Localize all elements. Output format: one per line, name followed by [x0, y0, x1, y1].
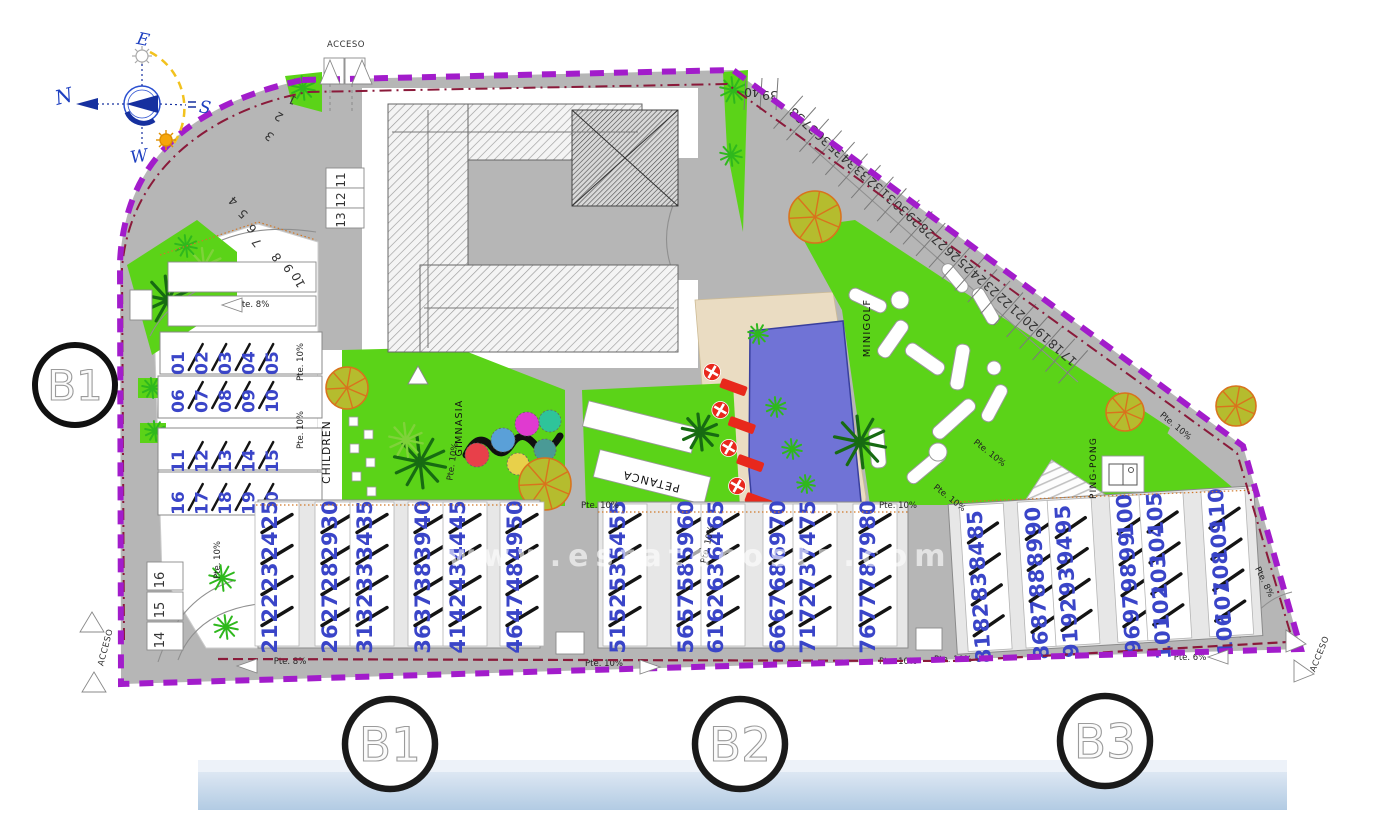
unit-number: 01: [169, 351, 189, 375]
block-marker-b2: B2: [695, 699, 785, 789]
tree-icon: [789, 191, 841, 243]
ping-pong-table: [1102, 456, 1144, 492]
access-bottom-right: ACCESO: [1286, 630, 1332, 682]
unit-number: 02: [193, 351, 213, 375]
unit-number: 41: [446, 624, 470, 653]
unit-number: 06: [169, 389, 189, 413]
unit-number: 34: [353, 531, 377, 560]
unit-number: 30: [318, 500, 342, 529]
unit-number: 18: [216, 491, 236, 515]
unit-number: 97: [1118, 593, 1144, 624]
block-marker-label: B1: [359, 718, 421, 773]
unit-number: 45: [446, 500, 470, 529]
unit-number: 87: [1026, 599, 1052, 630]
tree-icon: [1216, 386, 1256, 426]
stepping-stone: [350, 444, 359, 453]
unit-number: 08: [216, 389, 236, 413]
unit-number: 39: [411, 531, 435, 560]
unit-number: 76: [856, 624, 880, 653]
unit-number: 94: [1052, 535, 1078, 566]
compass-n: N: [51, 82, 76, 110]
unit-number: 28: [318, 562, 342, 591]
unit-number: 38: [411, 562, 435, 591]
unit-number: 61: [704, 624, 728, 653]
row-block-b1: 2122232425262728293031323334353637383940…: [255, 500, 544, 654]
unit-number: 12: [193, 449, 213, 473]
minigolf-label: MINIGOLF: [862, 299, 873, 358]
gate-triangle: [80, 612, 104, 632]
unit-number: 07: [193, 389, 213, 413]
unit-number: 84: [965, 541, 991, 572]
site-plan-svg: 0102030405060708091011121314151617181920…: [0, 0, 1393, 823]
unit-number: 17: [193, 491, 213, 515]
unit-number: 62: [704, 593, 728, 622]
unit-number: 03: [216, 351, 236, 375]
unit-number: 95: [1050, 504, 1076, 535]
ping-pong-label: PING-PONG: [1089, 437, 1099, 499]
unit-number: 75: [796, 500, 820, 529]
unit-number: 09: [240, 389, 260, 413]
north-arrow: [76, 98, 98, 110]
unit-number: 47: [503, 593, 527, 622]
parking-number: 11: [334, 172, 348, 187]
acceso-label: ACCESO: [1308, 635, 1332, 674]
unit-number: 11: [169, 449, 189, 473]
unit-number: 110: [1204, 488, 1231, 533]
access-bottom-left: ACCESO: [80, 612, 116, 692]
unit-number: 93: [1054, 566, 1080, 597]
umbrella-icon: [729, 478, 746, 495]
unit-number: 80: [856, 500, 880, 529]
unit-number: 92: [1056, 597, 1082, 628]
stepping-stone: [352, 472, 361, 481]
unit-number: 50: [503, 500, 527, 529]
stepping-stone: [366, 458, 375, 467]
unit-number: 22: [258, 593, 282, 622]
unit-number: 26: [318, 624, 342, 653]
unit-number: 42: [446, 593, 470, 622]
parking-number: 14: [153, 632, 168, 649]
unit-number: 83: [966, 571, 992, 602]
block-marker-b3: B3: [1060, 696, 1150, 786]
unit-number: 66: [766, 624, 790, 653]
unit-number: 60: [674, 500, 698, 529]
tree-icon: [326, 367, 368, 409]
unit-number: 32: [353, 593, 377, 622]
stepping-stone: [349, 417, 358, 426]
watermark: www.estatecosta.com: [448, 539, 953, 574]
unit-number: 70: [766, 500, 790, 529]
row-block-b2: 5152535455565758596061626364656667686970…: [598, 500, 908, 653]
unit-number: 46: [503, 624, 527, 653]
acceso-label: ACCESO: [96, 628, 115, 667]
unit-number: 72: [796, 593, 820, 622]
slope-label: Pte. 10%: [581, 501, 619, 511]
unit-number: 13: [216, 449, 236, 473]
block-marker-b1: B1: [345, 699, 435, 789]
unit-number: 77: [856, 593, 880, 622]
unit-number: 100: [1112, 493, 1139, 538]
children-label: CHILDREN: [321, 420, 333, 484]
unit-number: 52: [606, 593, 630, 622]
block-marker-label: B2: [709, 718, 771, 773]
parking-number: 16: [153, 572, 168, 589]
slope-label: Pte. 10%: [296, 411, 306, 449]
site-plan-page: 0102030405060708091011121314151617181920…: [0, 0, 1393, 823]
stepping-stone: [364, 430, 373, 439]
unit-number: 31: [353, 624, 377, 653]
unit-number: 57: [674, 593, 698, 622]
stepping-stone: [367, 487, 376, 496]
unit-number: 21: [258, 624, 282, 653]
unit-number: 23: [258, 562, 282, 591]
unit-number: 24: [258, 531, 282, 560]
unit-number: 56: [674, 624, 698, 653]
slope-label: Pte. 10%: [879, 501, 917, 511]
parking-number: 12: [334, 192, 348, 207]
unit-number: 27: [318, 593, 342, 622]
umbrella-icon: [720, 440, 737, 457]
block-marker-label: B1: [47, 361, 103, 410]
unit-number: 10: [263, 389, 283, 413]
parking-number: 15: [153, 602, 168, 619]
unit-number: 16: [169, 491, 189, 515]
acceso-label: ACCESO: [327, 40, 365, 50]
umbrella-icon: [712, 402, 729, 419]
unit-number: 37: [411, 593, 435, 622]
umbrella-icon: [704, 364, 721, 381]
unit-number: 85: [963, 510, 989, 541]
unit-number: 14: [240, 449, 260, 473]
compass-e: E: [134, 29, 152, 51]
unit-number: 36: [411, 624, 435, 653]
sun-icon-bottom: [156, 130, 176, 150]
unit-number: 33: [353, 562, 377, 591]
unit-number: 67: [766, 593, 790, 622]
unit-number: 105: [1142, 491, 1169, 536]
unit-number: 40: [411, 500, 435, 529]
block-marker-left: B1: [35, 345, 115, 425]
parking-number: 13: [334, 212, 348, 227]
gate-triangle: [82, 672, 106, 692]
slope-label: Pte. 10%: [296, 343, 306, 381]
unit-number: 29: [318, 531, 342, 560]
unit-number: 89: [1022, 537, 1048, 568]
unit-number: 05: [263, 351, 283, 375]
unit-number: 51: [606, 624, 630, 653]
unit-number: 25: [258, 500, 282, 529]
slope-label: Pte. 10%: [213, 541, 223, 579]
block-marker-label: B3: [1074, 715, 1136, 770]
gimnasia-label: GIMNASIA: [454, 400, 465, 457]
row-block-b3: 8182838485868788899091929394959697989910…: [948, 486, 1264, 672]
compass-w: W: [129, 145, 151, 168]
unit-number: 90: [1021, 506, 1047, 537]
unit-number: 82: [968, 602, 994, 633]
unit-number: 88: [1024, 568, 1050, 599]
tree-icon: [1106, 393, 1144, 431]
unit-number: 71: [796, 624, 820, 653]
unit-number: 15: [263, 449, 283, 473]
unit-number: 04: [240, 351, 260, 375]
unit-number: 98: [1116, 562, 1142, 593]
